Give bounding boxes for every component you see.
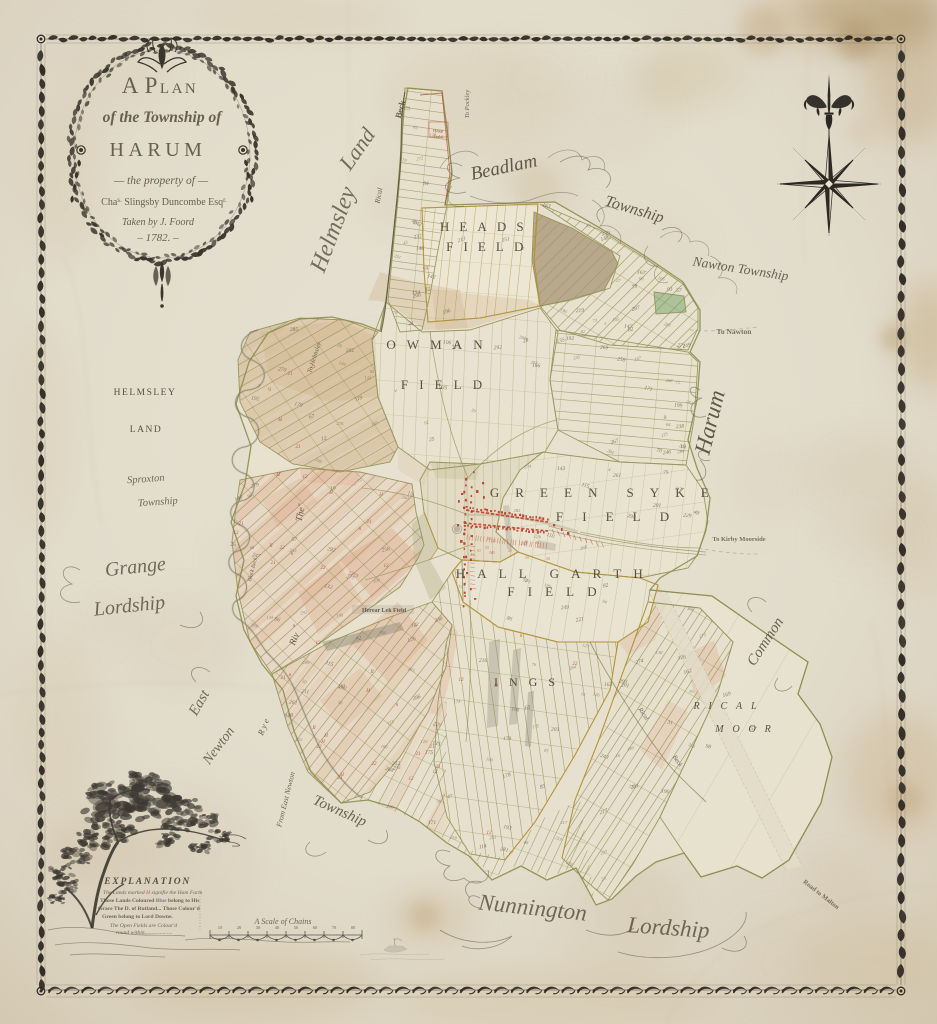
svg-text:84: 84: [538, 516, 543, 521]
svg-text:22: 22: [372, 762, 378, 767]
svg-text:30: 30: [525, 555, 529, 560]
svg-text:The Open Fields are Colour'd: The Open Fields are Colour'd: [110, 923, 177, 929]
svg-text:Herear Lek Field: Herear Lek Field: [362, 608, 407, 614]
svg-text:57: 57: [676, 288, 682, 294]
svg-text:54: 54: [489, 550, 493, 555]
svg-text:146: 146: [416, 245, 425, 252]
svg-text:22: 22: [317, 745, 323, 750]
svg-text:31: 31: [666, 720, 673, 727]
svg-text:I N G S: I N G S: [494, 675, 560, 689]
svg-text:192: 192: [566, 336, 575, 342]
svg-text:round within..................: round within....................: [116, 930, 173, 936]
svg-text:12: 12: [384, 564, 390, 569]
svg-text:30: 30: [256, 925, 261, 930]
svg-text:84: 84: [423, 180, 429, 187]
svg-text:111: 111: [338, 684, 346, 691]
svg-text:143: 143: [557, 465, 566, 472]
svg-text:114: 114: [478, 842, 487, 850]
svg-text:HELMSLEY: HELMSLEY: [114, 388, 177, 398]
svg-text:285: 285: [290, 327, 299, 333]
svg-text:60: 60: [313, 925, 318, 930]
svg-text:271: 271: [677, 343, 686, 350]
svg-text:Green belong to Lord Downe.: Green belong to Lord Downe.: [102, 914, 174, 920]
svg-text:O W M A N: O W M A N: [386, 337, 487, 352]
svg-text:12: 12: [321, 436, 327, 443]
svg-text:280: 280: [401, 495, 409, 501]
svg-text:12: 12: [303, 475, 309, 480]
svg-text:12: 12: [433, 770, 439, 775]
svg-text:269: 269: [600, 345, 609, 352]
svg-text:Those Lands Coloured Blue belo: Those Lands Coloured Blue belong to His: [100, 898, 200, 904]
svg-text:To Kirby Moorside: To Kirby Moorside: [712, 536, 765, 543]
svg-text:of the Township of: of the Township of: [103, 109, 224, 126]
svg-text:75: 75: [663, 470, 669, 477]
svg-text:The Lands marked H signifie th: The Lands marked H signifie the Ham Farm: [103, 889, 202, 896]
svg-text:202: 202: [346, 348, 355, 355]
svg-text:21: 21: [416, 752, 421, 757]
svg-text:12: 12: [234, 531, 240, 536]
svg-text:To Nawton: To Nawton: [717, 327, 753, 336]
svg-text:– 1782. –: – 1782. –: [136, 232, 179, 244]
svg-text:51: 51: [477, 548, 481, 553]
svg-text:276: 276: [337, 421, 345, 426]
svg-text:163: 163: [604, 682, 613, 688]
svg-text:H: H: [328, 491, 333, 496]
svg-text:To Pockley: To Pockley: [464, 90, 471, 119]
svg-text:21: 21: [239, 522, 244, 527]
svg-text:F I E L D: F I E L D: [401, 377, 487, 392]
svg-text:43: 43: [508, 548, 512, 553]
svg-text:12: 12: [459, 678, 465, 683]
svg-text:H: H: [275, 473, 280, 478]
svg-text:12: 12: [414, 623, 420, 628]
svg-text:H A L L G A R T H: H A L L G A R T H: [456, 566, 649, 581]
svg-text:12: 12: [487, 831, 493, 836]
svg-text:147: 147: [624, 323, 633, 331]
svg-text:10: 10: [218, 925, 223, 930]
svg-text:268: 268: [666, 378, 674, 383]
svg-text:261: 261: [613, 473, 622, 479]
svg-text:22: 22: [321, 566, 327, 571]
svg-text:274: 274: [524, 464, 532, 470]
svg-text:LAND: LAND: [130, 425, 162, 435]
svg-text:289: 289: [302, 660, 310, 665]
svg-text:24: 24: [408, 320, 414, 328]
svg-text:HARUM: HARUM: [110, 139, 207, 161]
svg-text:21: 21: [271, 561, 276, 566]
svg-text:H: H: [323, 734, 328, 739]
svg-text:Field: Field: [433, 134, 443, 139]
svg-text:62: 62: [581, 329, 586, 334]
svg-text:166: 166: [380, 744, 388, 750]
svg-text:R I C A L: R I C A L: [692, 701, 760, 712]
svg-text:174: 174: [453, 699, 461, 705]
svg-text:A Scale of Chains: A Scale of Chains: [254, 917, 312, 926]
svg-text:190: 190: [661, 789, 670, 796]
svg-text:12: 12: [316, 641, 322, 646]
svg-text:Hagg: Hagg: [433, 128, 443, 133]
svg-text:47: 47: [447, 793, 454, 801]
svg-text:21: 21: [487, 536, 491, 541]
svg-text:H: H: [277, 418, 282, 423]
svg-text:192: 192: [251, 396, 260, 403]
svg-text:M O O R: M O O R: [714, 724, 774, 735]
svg-text:122: 122: [364, 375, 372, 381]
svg-text:229: 229: [683, 513, 692, 520]
svg-text:21: 21: [296, 445, 301, 450]
svg-text:199: 199: [674, 403, 683, 410]
svg-text:20: 20: [237, 925, 242, 930]
svg-text:292: 292: [531, 360, 539, 365]
svg-text:21: 21: [288, 372, 293, 377]
svg-text:219: 219: [576, 308, 585, 315]
svg-text:— the property of —: — the property of —: [113, 175, 209, 187]
svg-text:215: 215: [295, 737, 303, 742]
svg-text:21: 21: [367, 520, 372, 525]
svg-text:20: 20: [524, 539, 528, 544]
svg-text:40: 40: [275, 925, 280, 930]
svg-text:216: 216: [479, 658, 488, 664]
svg-text:138: 138: [656, 650, 664, 655]
svg-text:246: 246: [662, 449, 671, 457]
svg-text:22: 22: [349, 572, 355, 577]
svg-text:93: 93: [667, 287, 674, 294]
svg-text:II: II: [311, 726, 316, 731]
svg-text:70: 70: [332, 925, 337, 930]
svg-text:249: 249: [560, 604, 569, 612]
svg-text:12: 12: [409, 777, 415, 782]
svg-text:II: II: [369, 670, 374, 675]
svg-text:G R E E N S Y K E: G R E E N S Y K E: [490, 485, 716, 500]
svg-text:80: 80: [351, 925, 356, 930]
svg-text:238: 238: [676, 424, 685, 431]
svg-text:258: 258: [617, 356, 626, 363]
svg-text:76: 76: [532, 662, 537, 667]
svg-text:92: 92: [370, 369, 375, 374]
svg-text:H: H: [339, 773, 344, 778]
svg-text:26: 26: [230, 542, 236, 548]
svg-text:178: 178: [503, 736, 512, 742]
svg-text:Grace The D. of Rutland... Tho: Grace The D. of Rutland... Those Colour'…: [98, 906, 201, 912]
svg-text:F I E L D: F I E L D: [556, 509, 678, 524]
svg-text:H: H: [320, 740, 325, 745]
svg-text:50: 50: [294, 925, 299, 930]
svg-text:H E A D S: H E A D S: [440, 219, 528, 234]
svg-text:22: 22: [280, 546, 286, 551]
svg-text:175: 175: [425, 750, 434, 756]
svg-text:II: II: [268, 544, 273, 549]
svg-text:120: 120: [420, 739, 428, 744]
svg-text:188: 188: [284, 713, 293, 720]
svg-text:F I E L D: F I E L D: [507, 584, 602, 599]
svg-text:20: 20: [546, 556, 550, 561]
svg-text:203: 203: [551, 727, 560, 733]
svg-text:52: 52: [492, 538, 496, 543]
svg-text:117: 117: [561, 820, 568, 825]
svg-text:22: 22: [573, 662, 579, 667]
svg-text:9: 9: [664, 415, 667, 421]
svg-text:21: 21: [430, 745, 435, 750]
svg-text:46: 46: [535, 540, 539, 545]
svg-text:41: 41: [470, 552, 474, 557]
svg-text:F I E L D: F I E L D: [446, 239, 528, 254]
svg-text:H: H: [365, 689, 370, 694]
svg-text:E X P L A N A T I O N: E X P L A N A T I O N: [103, 877, 190, 887]
svg-text:292: 292: [493, 345, 502, 352]
svg-text:H: H: [378, 493, 383, 498]
svg-text:270: 270: [278, 366, 287, 373]
svg-text:70: 70: [393, 310, 398, 315]
svg-text:154: 154: [412, 289, 421, 296]
svg-text:171: 171: [428, 820, 437, 826]
svg-text:226: 226: [386, 804, 394, 810]
svg-text:Taken by J. Foord: Taken by J. Foord: [122, 217, 195, 228]
svg-text:293: 293: [619, 679, 628, 686]
svg-text:57: 57: [291, 537, 297, 543]
svg-text:21: 21: [281, 676, 286, 681]
svg-text:282: 282: [513, 508, 521, 513]
